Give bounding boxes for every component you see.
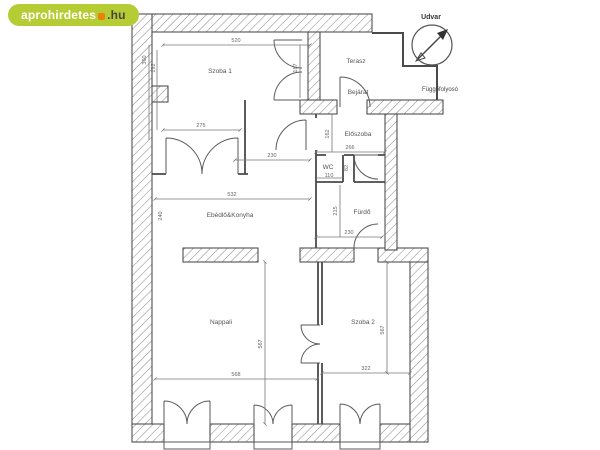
nappali-window-doors-2 xyxy=(254,405,292,424)
dim-wc-height: 82 xyxy=(344,165,350,171)
wall-entrance-seg2 xyxy=(367,100,443,114)
corridor-door-arc-2 xyxy=(274,72,302,100)
dim-eloszoba-height: 162 xyxy=(325,129,331,138)
compass-icon xyxy=(412,25,452,65)
fuggofolyoso-label: Függőfolyosó xyxy=(422,87,459,93)
furdo-door-arc xyxy=(354,224,378,248)
wall-terasz-divider xyxy=(308,32,320,100)
room-label-terasz: Terasz xyxy=(346,58,365,65)
dim-furdo-height: 215 xyxy=(333,206,339,215)
szoba1-french-doors xyxy=(166,138,238,174)
window-sill-1 xyxy=(164,442,210,449)
wall-nappali-szoba2-divider xyxy=(318,262,322,424)
watermark-suffix-text: .hu xyxy=(107,8,126,22)
watermark-orange-dot-icon xyxy=(98,13,105,20)
hall-door-arc xyxy=(276,120,306,150)
wall-left-step xyxy=(152,86,168,102)
dim-ebedlo-width: 532 xyxy=(227,192,236,198)
wall-bottom-seg1 xyxy=(132,424,164,442)
room-label-szoba2: Szoba 2 xyxy=(351,319,375,326)
outside-area: Udvar Függőfolyosó xyxy=(412,14,459,93)
window-sill-3 xyxy=(340,442,380,449)
dim-wc-width: 110 xyxy=(325,173,334,179)
floorplan-drawing: 520 275 230 266 532 230 568 322 110 360 … xyxy=(0,0,600,450)
room-label-nappali: Nappali xyxy=(210,319,232,326)
window-sill-2 xyxy=(254,442,292,449)
dim-ebedlo-height: 240 xyxy=(158,211,164,220)
aprohirdetes-watermark-badge: aprohirdetes .hu xyxy=(8,4,139,26)
wall-mid-seg1 xyxy=(183,248,258,262)
walls-hatched xyxy=(132,14,443,442)
szoba2-window-doors xyxy=(340,404,380,424)
dim-eloszoba-width: 266 xyxy=(345,145,354,151)
nappali-window-doors-1 xyxy=(164,401,210,424)
dim-nappali-height: 567 xyxy=(258,339,264,348)
dim-corridor-height: 187 xyxy=(293,63,299,72)
dim-szoba1-part: 275 xyxy=(196,123,205,129)
shower-door-arc xyxy=(354,155,378,179)
room-label-ebedlo: Ebédlő&Konyha xyxy=(207,212,254,219)
wall-entrance-seg1 xyxy=(300,100,337,114)
wall-bottom-seg2 xyxy=(210,424,254,442)
room-label-furdo: Fürdő xyxy=(354,209,371,216)
wall-mid-seg2 xyxy=(300,248,354,262)
floorplan-page: aprohirdetes .hu xyxy=(0,0,600,450)
dim-furdo-width: 230 xyxy=(344,230,353,236)
wall-right-upper xyxy=(385,114,397,250)
room-label-eloszoba: Előszoba xyxy=(345,131,372,138)
dim-szoba1-height: 360 xyxy=(142,55,148,64)
nappali-szoba2-french-doors xyxy=(301,325,320,363)
wall-top xyxy=(132,14,372,32)
dim-nappali-width: 568 xyxy=(231,372,240,378)
udvar-label: Udvar xyxy=(421,14,441,21)
room-label-szoba1: Szoba 1 xyxy=(208,68,232,75)
wall-right-lower xyxy=(410,250,428,442)
dim-szoba1-height-inner: 192 xyxy=(151,63,157,72)
wall-bottom-seg3 xyxy=(292,424,340,442)
dim-szoba1-width: 520 xyxy=(231,38,240,44)
watermark-brand-text: aprohirdetes xyxy=(21,8,96,22)
dim-hall-width: 230 xyxy=(267,153,276,159)
room-label-wc: WC xyxy=(323,164,334,171)
window-sills xyxy=(164,442,380,449)
dim-szoba2-height: 567 xyxy=(380,325,386,334)
dim-szoba2-width: 322 xyxy=(361,366,370,372)
room-label-bejarat: Bejárat xyxy=(348,89,369,96)
